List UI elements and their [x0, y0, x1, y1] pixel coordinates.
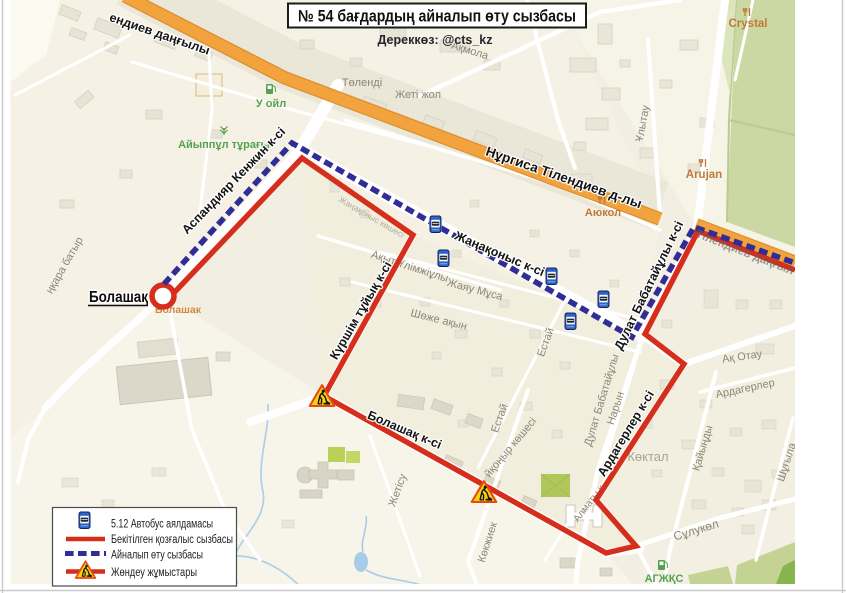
svg-text:Crystal: Crystal [729, 18, 768, 30]
svg-text:Айналып өту сызбасы: Айналып өту сызбасы [111, 550, 203, 562]
svg-text:№ 54 бағдардың айналып өту сыз: № 54 бағдардың айналып өту сызбасы [298, 8, 576, 26]
svg-text:Дереккөз: @cts_kz: Дереккөз: @cts_kz [377, 33, 492, 47]
svg-text:Болашақ: Болашақ [89, 289, 148, 306]
svg-text:Төленді: Төленді [342, 77, 382, 89]
svg-text:АГЖҚС: АГЖҚС [645, 573, 684, 585]
svg-text:Бекітілген қозғалыс сызбасы: Бекітілген қозғалыс сызбасы [111, 534, 233, 546]
svg-text:Arujan: Arujan [686, 169, 722, 181]
svg-text:5.12 Автобус аялдамасы: 5.12 Автобус аялдамасы [111, 519, 213, 531]
svg-text:У ойл: У ойл [256, 98, 286, 110]
svg-text:Көктал: Көктал [627, 449, 668, 464]
svg-text:Жеті жол: Жеті жол [395, 89, 441, 101]
svg-text:Жөндеу жұмыстары: Жөндеу жұмыстары [111, 567, 197, 579]
svg-text:Аюкол: Аюкол [585, 207, 621, 219]
